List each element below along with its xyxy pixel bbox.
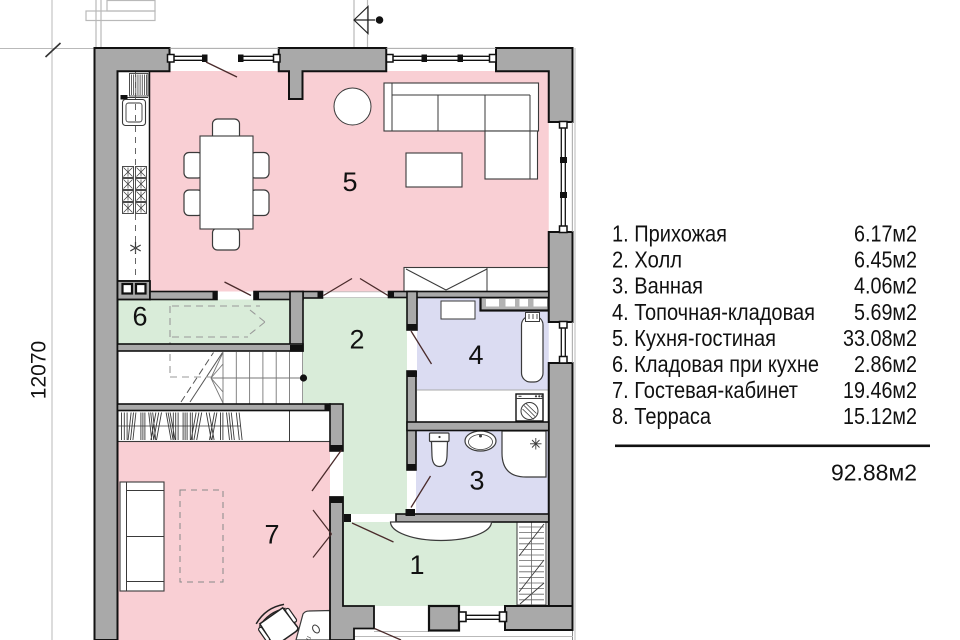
svg-text:6. Кладовая при кухне: 6. Кладовая при кухне: [612, 351, 819, 377]
svg-text:33.08м2: 33.08м2: [843, 325, 917, 351]
svg-text:4. Топочная-кладовая: 4. Топочная-кладовая: [612, 299, 815, 325]
svg-text:2: 2: [349, 325, 364, 355]
svg-text:6: 6: [132, 302, 147, 332]
svg-text:3. Ванная: 3. Ванная: [612, 273, 703, 299]
svg-text:4: 4: [468, 340, 483, 370]
svg-text:4.06м2: 4.06м2: [854, 273, 917, 299]
svg-text:7. Гостевая-кабинет: 7. Гостевая-кабинет: [612, 377, 798, 403]
svg-text:5.69м2: 5.69м2: [854, 299, 917, 325]
svg-text:6.45м2: 6.45м2: [854, 247, 917, 273]
svg-text:92.88м2: 92.88м2: [831, 460, 917, 486]
svg-text:1. Прихожая: 1. Прихожая: [612, 221, 727, 247]
svg-text:19.46м2: 19.46м2: [843, 377, 917, 403]
svg-text:1: 1: [409, 550, 424, 580]
svg-text:5. Кухня-гостиная: 5. Кухня-гостиная: [612, 325, 776, 351]
svg-text:2.86м2: 2.86м2: [854, 351, 917, 377]
svg-text:7: 7: [264, 520, 279, 550]
svg-text:12070: 12070: [28, 341, 51, 399]
svg-text:6.17м2: 6.17м2: [854, 221, 917, 247]
svg-text:15.12м2: 15.12м2: [843, 403, 917, 429]
svg-text:2. Холл: 2. Холл: [612, 247, 682, 273]
svg-text:5: 5: [342, 167, 357, 197]
svg-text:3: 3: [469, 466, 484, 496]
svg-text:8. Терраса: 8. Терраса: [612, 403, 712, 429]
